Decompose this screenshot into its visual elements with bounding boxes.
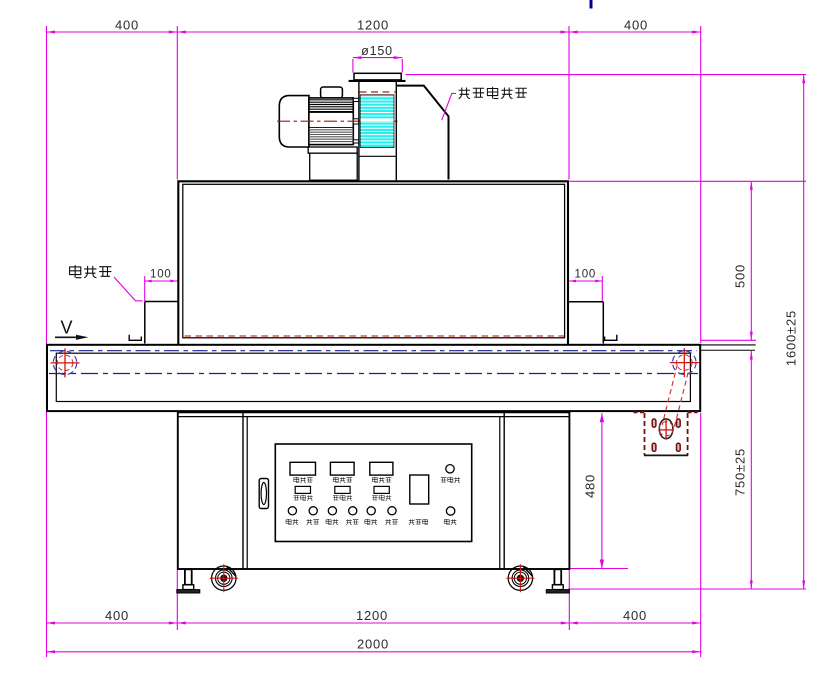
svg-text:500: 500	[733, 264, 748, 288]
svg-text:100: 100	[575, 269, 597, 281]
svg-text:400: 400	[105, 608, 129, 623]
svg-text:2000: 2000	[357, 637, 389, 652]
svg-text:480: 480	[583, 474, 598, 498]
svg-text:1600±25: 1600±25	[784, 310, 799, 366]
svg-text:1200: 1200	[356, 608, 388, 623]
svg-text:ø150: ø150	[361, 44, 393, 58]
svg-text:750±25: 750±25	[733, 448, 748, 496]
svg-text:V: V	[60, 318, 72, 338]
svg-text:400: 400	[115, 18, 139, 33]
svg-text:400: 400	[624, 18, 648, 33]
svg-text:100: 100	[150, 269, 172, 281]
svg-text:1200: 1200	[357, 18, 389, 33]
svg-text:400: 400	[623, 608, 647, 623]
